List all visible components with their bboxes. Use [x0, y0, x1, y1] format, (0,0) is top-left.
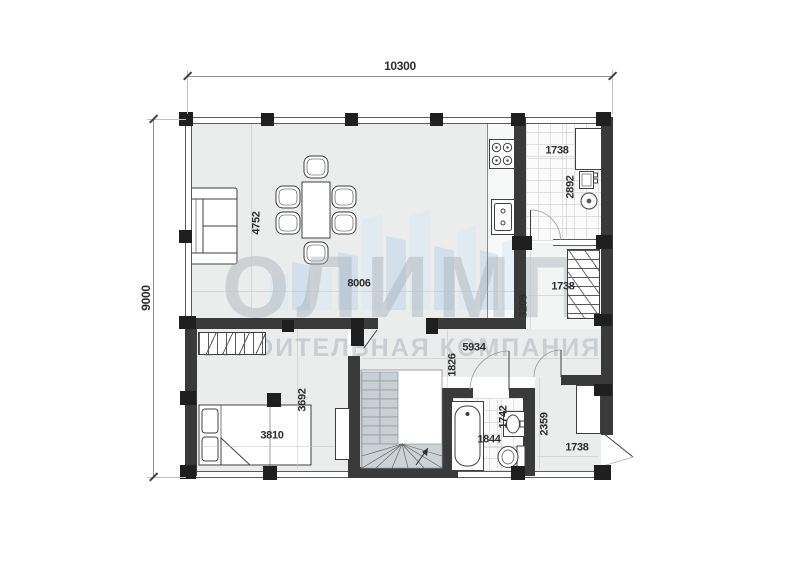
column — [594, 314, 612, 326]
column — [512, 236, 532, 250]
column — [351, 318, 364, 346]
dim-pantry-depth: 2892 — [566, 175, 577, 198]
dim-ladder-depth: 3209 — [519, 294, 530, 317]
column — [430, 113, 443, 126]
dim-bathroom-depth: 1742 — [499, 405, 510, 428]
wall-top-window — [185, 117, 608, 124]
bedroom-cabinet — [335, 408, 350, 460]
wall-middle-b — [428, 318, 526, 329]
boiler-appliance-icon — [579, 171, 598, 189]
water-heater-icon — [580, 192, 598, 210]
column — [179, 230, 192, 243]
dim-bathroom-width: 1844 — [477, 435, 500, 446]
column — [282, 320, 294, 332]
column — [263, 466, 277, 480]
column — [426, 318, 438, 334]
column — [596, 235, 612, 249]
dim-line — [537, 456, 599, 457]
column — [179, 316, 196, 329]
dim-ladder-width: 1738 — [551, 282, 574, 293]
column — [345, 113, 358, 126]
dim-hall-width: 5934 — [462, 343, 485, 354]
bed — [198, 404, 312, 466]
dim-bedroom-width: 3810 — [260, 431, 283, 442]
dim-line-top — [187, 76, 613, 77]
dim-living-width: 8006 — [347, 279, 370, 290]
door-bedroom — [363, 329, 379, 349]
kitchen-sink-icon — [491, 199, 515, 235]
door-pantry — [529, 209, 562, 242]
dim-pantry-width: 1738 — [545, 146, 568, 157]
column — [594, 465, 611, 480]
dim-total-depth: 9000 — [140, 285, 152, 311]
kitchen-counter-edge — [487, 122, 488, 318]
wardrobe-hatched — [198, 332, 266, 355]
dim-total-width: 10300 — [384, 60, 416, 72]
door-entry-hall — [533, 349, 563, 379]
door-entrance — [602, 430, 638, 468]
dim-entry-width: 1738 — [565, 443, 588, 454]
dim-line — [530, 243, 531, 329]
dim-line — [190, 291, 514, 292]
column — [261, 113, 274, 126]
pantry-counter — [575, 128, 602, 170]
wall-left-window — [185, 117, 192, 322]
floor-plan: ОЛИМП СТРОИТЕЛЬНАЯ КОМПАНИЯ — [0, 0, 800, 566]
column — [511, 113, 525, 126]
dim-line — [200, 446, 346, 447]
door-bathroom — [469, 350, 511, 392]
column — [267, 393, 281, 407]
column — [594, 384, 612, 396]
dim-line-left — [153, 119, 154, 478]
column — [596, 112, 611, 126]
stove-icon — [489, 139, 515, 169]
dim-entry-depth: 2359 — [540, 412, 551, 435]
dim-hall-depth: 1826 — [448, 353, 459, 376]
column — [180, 391, 196, 405]
column — [511, 466, 525, 480]
dim-living-depth: 4752 — [252, 211, 263, 234]
dim-bedroom-depth: 3692 — [298, 388, 309, 411]
wall-kitchen — [514, 117, 526, 318]
stairs — [360, 368, 444, 470]
